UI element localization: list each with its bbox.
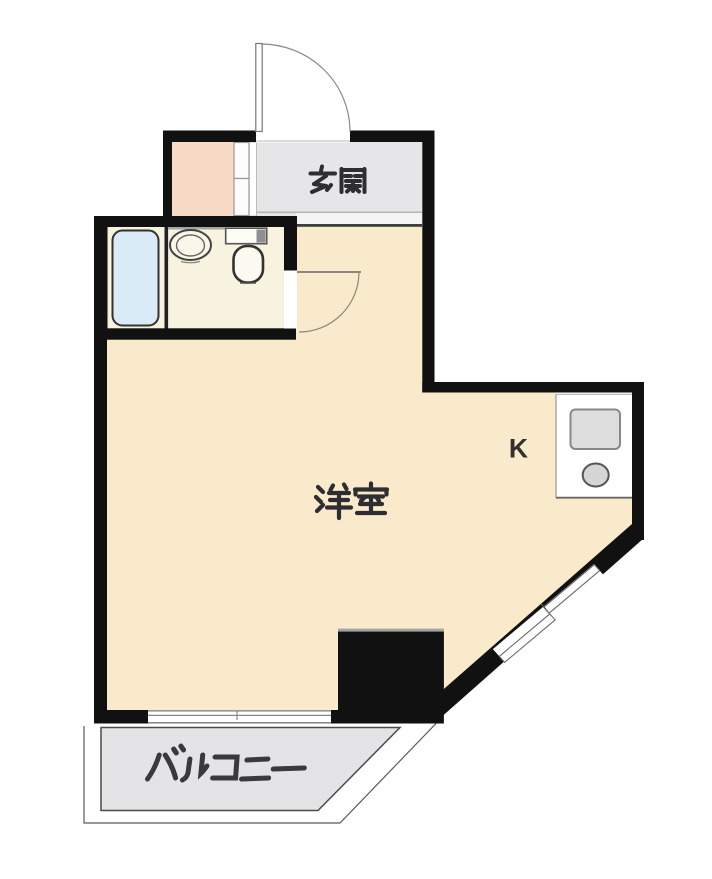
svg-text:K: K: [509, 434, 528, 464]
